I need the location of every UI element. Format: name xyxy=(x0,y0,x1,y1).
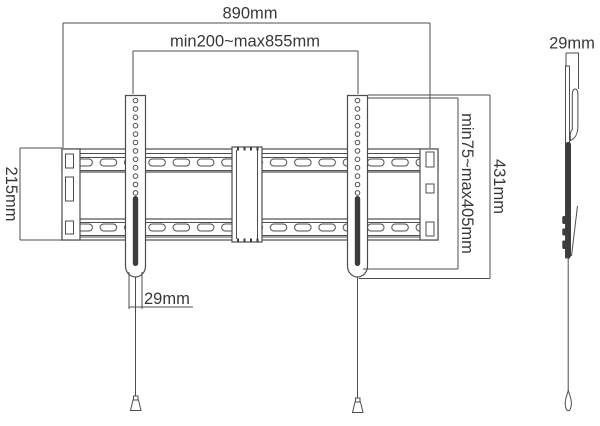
cord-weight xyxy=(353,402,364,413)
cord-weight xyxy=(131,400,142,411)
dim-total-width-label: 890mm xyxy=(222,5,277,23)
cord-knob xyxy=(134,396,139,400)
front-view: 890mm min200~max855mm 215mm min75~max405… xyxy=(2,5,508,413)
cord-knob xyxy=(356,398,361,402)
dim-arm-width-label: 29mm xyxy=(144,290,190,308)
mount-dimension-diagram: 890mm min200~max855mm 215mm min75~max405… xyxy=(0,0,600,426)
center-wall-plate xyxy=(232,147,262,242)
dim-side-depth: 29mm xyxy=(549,35,595,90)
dim-vesa-height-range-label: min75~max405mm xyxy=(458,113,476,254)
dim-arm-width: 29mm xyxy=(129,272,193,309)
left-vesa-arm xyxy=(126,96,146,278)
dim-side-depth-label: 29mm xyxy=(549,35,595,53)
arm-profile xyxy=(566,142,572,258)
right-vesa-arm xyxy=(348,96,368,278)
side-pull-cord xyxy=(565,258,571,411)
left-pull-cord xyxy=(131,277,142,411)
dim-bracket-height-label: 431mm xyxy=(490,159,508,214)
dim-wall-plate-height-label: 215mm xyxy=(2,166,20,221)
dim-wall-plate-height: 215mm xyxy=(2,148,62,240)
side-profile xyxy=(562,66,578,258)
cord-weight xyxy=(565,391,571,411)
technical-drawing: 890mm min200~max855mm 215mm min75~max405… xyxy=(0,0,600,426)
dim-total-width: 890mm xyxy=(63,5,430,149)
right-end-cap xyxy=(420,149,438,240)
dim-mount-width-range: min200~max855mm xyxy=(133,33,358,95)
right-pull-cord xyxy=(353,277,364,413)
left-end-cap xyxy=(62,149,80,240)
side-view: 29mm xyxy=(549,35,595,411)
dim-mount-width-range-label: min200~max855mm xyxy=(170,33,320,51)
hook-profile xyxy=(570,89,578,141)
